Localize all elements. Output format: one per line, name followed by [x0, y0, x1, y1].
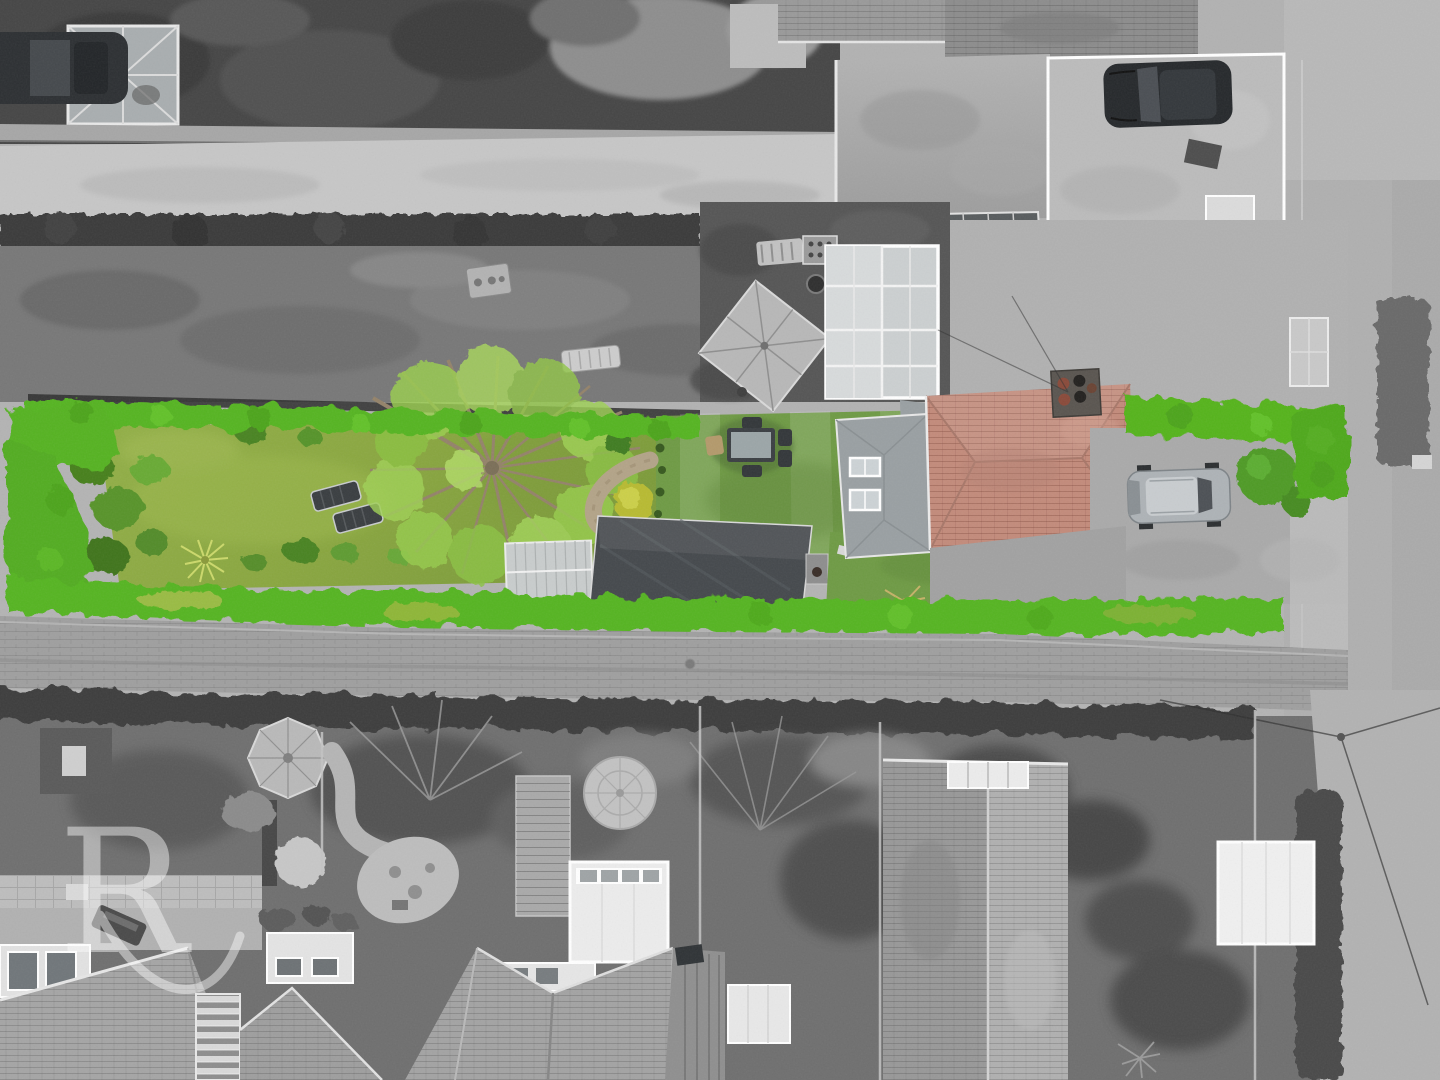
- aerial-photo-canvas: R: [0, 0, 1440, 1080]
- aerial-photo: R: [0, 0, 1440, 1080]
- photo-grain: [0, 0, 1440, 1080]
